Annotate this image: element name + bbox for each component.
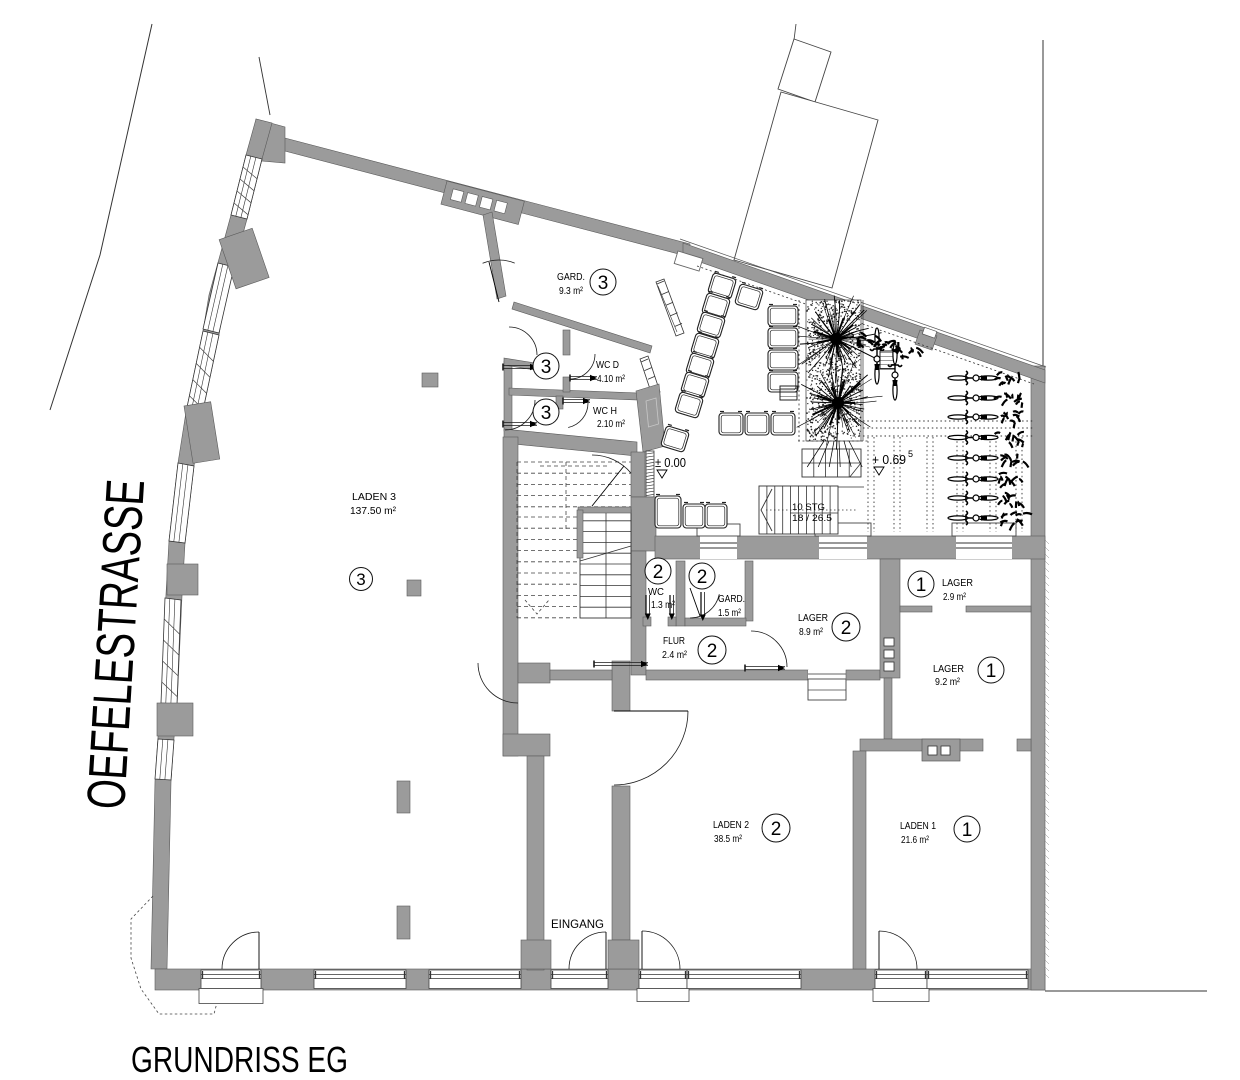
svg-text:2: 2 (653, 562, 664, 583)
svg-text:LADEN 2: LADEN 2 (713, 820, 749, 831)
svg-text:EINGANG: EINGANG (551, 917, 604, 931)
svg-text:9.3 m²: 9.3 m² (559, 286, 584, 297)
svg-text:± 0.00: ± 0.00 (655, 455, 686, 470)
svg-text:3: 3 (356, 570, 365, 589)
svg-text:2.9 m²: 2.9 m² (943, 592, 967, 603)
svg-text:2: 2 (841, 618, 852, 639)
svg-text:10 STG: 10 STG (792, 502, 825, 512)
svg-text:4.10 m²: 4.10 m² (597, 374, 626, 385)
svg-text:3: 3 (598, 273, 609, 294)
svg-text:1.5 m²: 1.5 m² (718, 608, 742, 619)
svg-text:LAGER: LAGER (942, 578, 973, 589)
svg-text:GARD.: GARD. (557, 272, 585, 283)
svg-text:18 / 26.5: 18 / 26.5 (792, 513, 832, 523)
svg-text:2: 2 (771, 819, 782, 840)
svg-text:FLUR: FLUR (663, 636, 685, 647)
svg-text:21.6 m²: 21.6 m² (901, 835, 930, 846)
svg-text:2.4 m²: 2.4 m² (662, 650, 688, 661)
svg-text:LADEN 1: LADEN 1 (900, 821, 936, 832)
svg-text:1: 1 (962, 820, 973, 841)
svg-text:2: 2 (697, 567, 708, 588)
svg-text:137.50 m²: 137.50 m² (350, 506, 397, 517)
svg-text:3: 3 (541, 403, 552, 424)
svg-text:1: 1 (986, 661, 997, 682)
svg-text:WC H: WC H (593, 406, 617, 417)
svg-text:GRUNDRISS EG: GRUNDRISS EG (131, 1039, 348, 1080)
svg-text:LAGER: LAGER (933, 664, 964, 675)
svg-text:LAGER: LAGER (798, 613, 828, 624)
svg-text:WC: WC (648, 587, 664, 598)
svg-text:2.10 m²: 2.10 m² (597, 419, 626, 430)
svg-text:GARD.: GARD. (718, 594, 745, 605)
svg-text:WC D: WC D (596, 360, 619, 371)
svg-text:1.3 m²: 1.3 m² (651, 600, 676, 611)
svg-text:+ 0.69: + 0.69 (872, 452, 906, 467)
svg-text:LADEN 3: LADEN 3 (352, 492, 396, 503)
svg-text:9.2 m²: 9.2 m² (935, 677, 961, 688)
svg-text:2: 2 (707, 641, 718, 662)
svg-text:3: 3 (541, 357, 552, 378)
svg-text:5: 5 (908, 449, 913, 459)
svg-text:1: 1 (916, 575, 927, 596)
svg-text:38.5 m²: 38.5 m² (714, 834, 743, 845)
svg-text:8.9 m²: 8.9 m² (799, 627, 824, 638)
